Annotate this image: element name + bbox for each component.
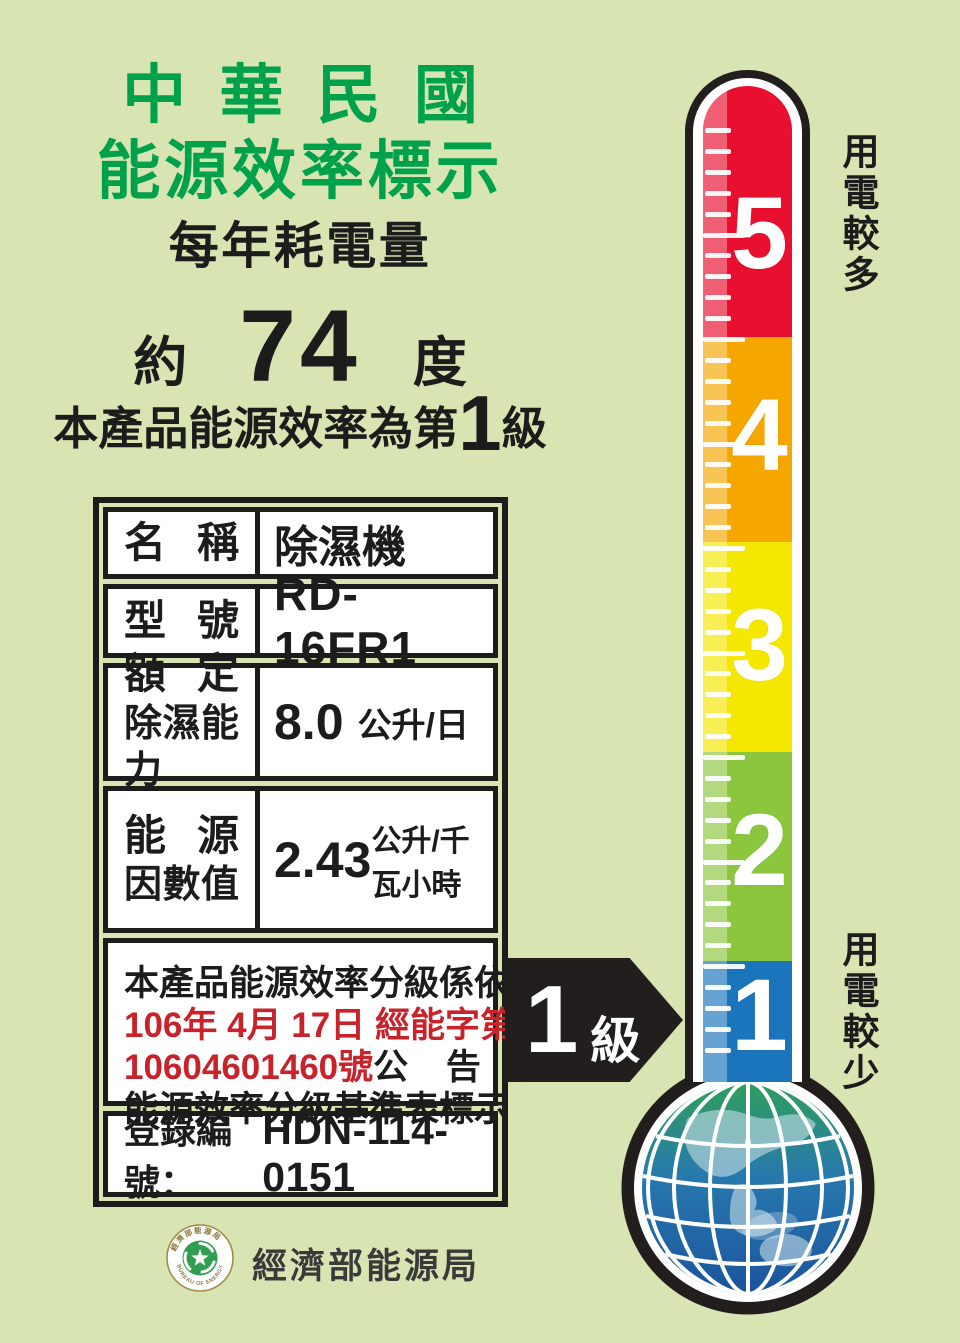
registration-value: HDN-114-0151 (262, 1107, 477, 1201)
notice-line2: 106年 4月 17日 經能字第 (124, 1005, 477, 1047)
level-3-number: 3 (703, 594, 792, 696)
globe-grid (643, 1082, 853, 1294)
energy-factor-value-cell: 2.43 公升/千瓦小時 (260, 791, 493, 928)
grade-statement: 本產品能源效率為第1級 (10, 392, 590, 457)
energy-factor-unit: 公升/千瓦小時 (371, 816, 477, 904)
name-label: 名稱 (124, 517, 239, 570)
globe-graphic (618, 1058, 878, 1318)
capacity-label-cell: 額定 除濕能力 (108, 668, 260, 776)
level-4-number: 4 (703, 384, 792, 486)
thermometer-tube: 5 4 3 2 1 (685, 70, 810, 1082)
annual-consumption-heading: 每年耗電量 (30, 206, 570, 278)
capacity-value-cell: 8.0 公升/日 (260, 668, 493, 776)
energy-factor-value: 2.43 (274, 831, 371, 889)
grade-statement-value: 1 (458, 379, 501, 467)
energy-factor-label-line1: 能源 (124, 810, 239, 863)
capacity-label-line1: 額定 (124, 648, 239, 701)
capacity-value: 8.0 (274, 693, 344, 751)
level-1-number: 1 (703, 964, 792, 1066)
grade-statement-prefix: 本產品能源效率為第 (53, 403, 458, 454)
name-value: 除濕機 (274, 511, 406, 575)
approx-prefix: 約 (133, 318, 187, 397)
level-2-number: 2 (703, 799, 792, 901)
grade-statement-suffix: 級 (502, 403, 547, 454)
notice-line3-document-number: 10604601460號 (124, 1047, 373, 1089)
level-5-number: 5 (703, 182, 792, 284)
model-label-cell: 型號 (108, 589, 260, 653)
label-title-line2: 能源效率標示 (30, 120, 570, 212)
model-label: 型號 (124, 595, 239, 648)
uses-more-power-label: 用電較多 (830, 132, 884, 296)
bureau-of-energy-seal-icon: 經濟部能源局 BUREAU OF ENERGY (164, 1222, 236, 1294)
name-value-cell: 除濕機 (260, 512, 493, 574)
energy-factor-label-line2: 因數值 (124, 862, 239, 910)
spec-table: 名稱 除濕機 型號 RD-16FR1 額定 除濕能力 8.0 公升/日 (93, 497, 508, 1207)
name-label-cell: 名稱 (108, 512, 260, 574)
model-value-cell: RD-16FR1 (260, 589, 493, 653)
kwh-value: 74 (239, 288, 360, 405)
table-row-model: 型號 RD-16FR1 (103, 584, 498, 658)
notice-line1: 本產品能源效率分級係依經濟部 (124, 963, 477, 1005)
energy-factor-label-cell: 能源 因數值 (108, 791, 260, 928)
registration-label: 登錄編號： (124, 1102, 262, 1206)
capacity-label-line2: 除濕能力 (124, 701, 239, 796)
notice-line3: 10604601460號 公 告 之 (124, 1047, 477, 1089)
thermometer-scale: 5 4 3 2 1 (703, 86, 792, 1082)
table-row-notice: 本產品能源效率分級係依經濟部 106年 4月 17日 經能字第 10604601… (103, 938, 498, 1106)
table-row-capacity: 額定 除濕能力 8.0 公升/日 (103, 663, 498, 781)
agency-name: 經濟部能源局 (252, 1238, 480, 1289)
capacity-unit: 公升/日 (358, 698, 469, 747)
model-value: RD-16FR1 (274, 567, 479, 675)
arrow-grade-suffix: 級 (590, 1001, 640, 1073)
arrow-grade-value: 1 (525, 972, 578, 1068)
energy-label: 中華民國 能源效率標示 每年耗電量 約 74 度 本產品能源效率為第1級 名稱 … (0, 0, 960, 1343)
table-row-energy-factor: 能源 因數值 2.43 公升/千瓦小時 (103, 786, 498, 933)
table-row-registration: 登錄編號： HDN-114-0151 (103, 1111, 498, 1197)
